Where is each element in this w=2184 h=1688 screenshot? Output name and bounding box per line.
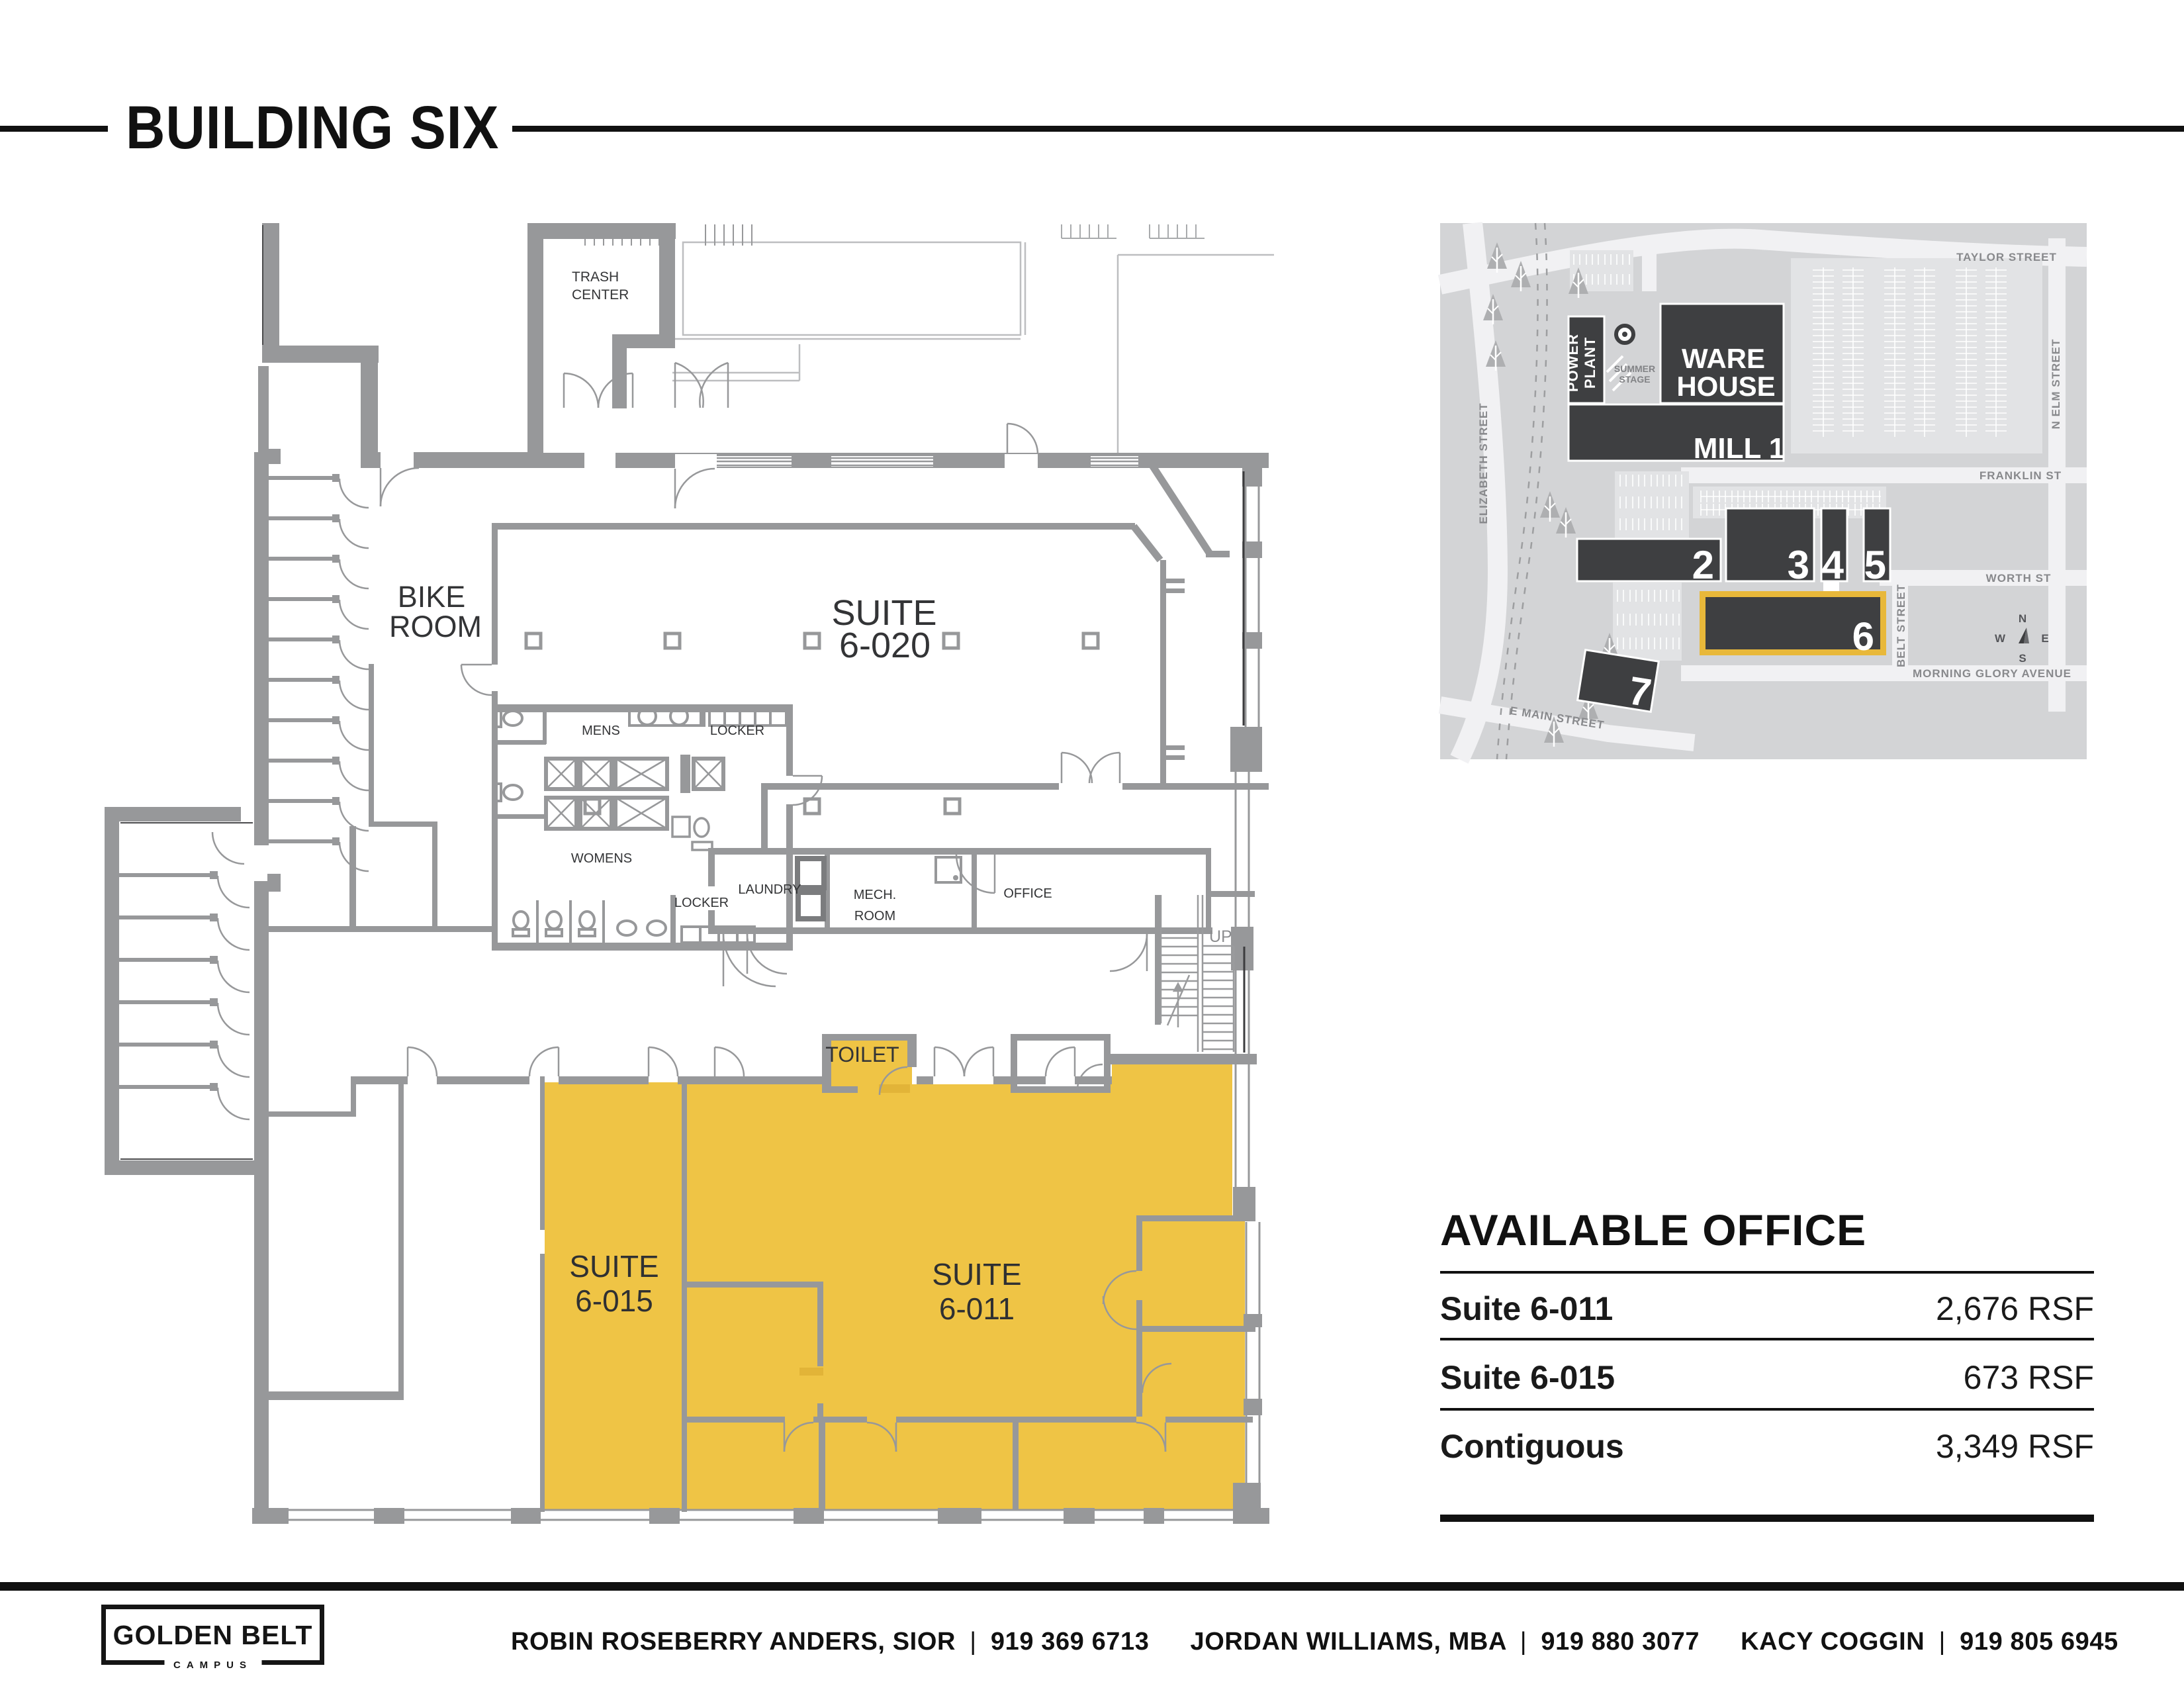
- svg-text:6: 6: [1852, 614, 1874, 659]
- svg-text:BELT STREET: BELT STREET: [1895, 584, 1907, 667]
- svg-text:4: 4: [1822, 543, 1844, 587]
- svg-text:MORNING GLORY AVENUE: MORNING GLORY AVENUE: [1913, 667, 2071, 680]
- svg-text:WORTH ST: WORTH ST: [1986, 572, 2052, 585]
- svg-text:MECH.: MECH.: [854, 888, 896, 902]
- svg-text:WOMENS: WOMENS: [571, 851, 632, 866]
- svg-text:CENTER: CENTER: [572, 287, 629, 303]
- svg-text:LOCKER: LOCKER: [674, 896, 729, 910]
- svg-text:POWER: POWER: [1565, 334, 1581, 392]
- svg-text:6-015: 6-015: [575, 1284, 653, 1318]
- svg-text:PLANT: PLANT: [1582, 337, 1598, 389]
- svg-text:N ELM STREET: N ELM STREET: [2050, 339, 2062, 430]
- svg-text:TOILET: TOILET: [825, 1043, 899, 1066]
- svg-text:SUITE: SUITE: [932, 1257, 1021, 1291]
- svg-text:6-020: 6-020: [839, 626, 931, 665]
- svg-text:ROOM: ROOM: [389, 610, 482, 643]
- svg-text:UP: UP: [1209, 927, 1232, 946]
- svg-text:N: N: [2019, 612, 2026, 625]
- svg-text:TRASH: TRASH: [572, 269, 619, 285]
- svg-text:TAYLOR STREET: TAYLOR STREET: [1956, 251, 2057, 263]
- svg-text:SUITE: SUITE: [569, 1249, 659, 1284]
- svg-text:HOUSE: HOUSE: [1676, 371, 1775, 402]
- svg-text:6-011: 6-011: [939, 1291, 1015, 1326]
- svg-text:MENS: MENS: [582, 724, 620, 738]
- svg-text:2: 2: [1692, 543, 1714, 587]
- svg-text:WARE: WARE: [1682, 343, 1765, 374]
- svg-text:S: S: [2019, 652, 2026, 665]
- svg-text:ELIZABETH STREET: ELIZABETH STREET: [1477, 402, 1490, 524]
- svg-text:OFFICE: OFFICE: [1003, 886, 1052, 901]
- svg-text:STAGE: STAGE: [1619, 374, 1650, 385]
- svg-text:BIKE: BIKE: [398, 580, 466, 614]
- svg-text:MILL 1: MILL 1: [1694, 432, 1786, 465]
- svg-text:SUMMER: SUMMER: [1614, 363, 1655, 374]
- svg-text:ROOM: ROOM: [854, 909, 895, 923]
- svg-text:5: 5: [1864, 543, 1886, 587]
- svg-text:W: W: [1995, 632, 2006, 645]
- svg-text:LOCKER: LOCKER: [710, 724, 764, 738]
- svg-text:LAUNDRY: LAUNDRY: [738, 882, 801, 897]
- svg-text:FRANKLIN ST: FRANKLIN ST: [1979, 469, 2062, 482]
- svg-text:E: E: [2041, 632, 2048, 645]
- svg-text:3: 3: [1788, 543, 1809, 587]
